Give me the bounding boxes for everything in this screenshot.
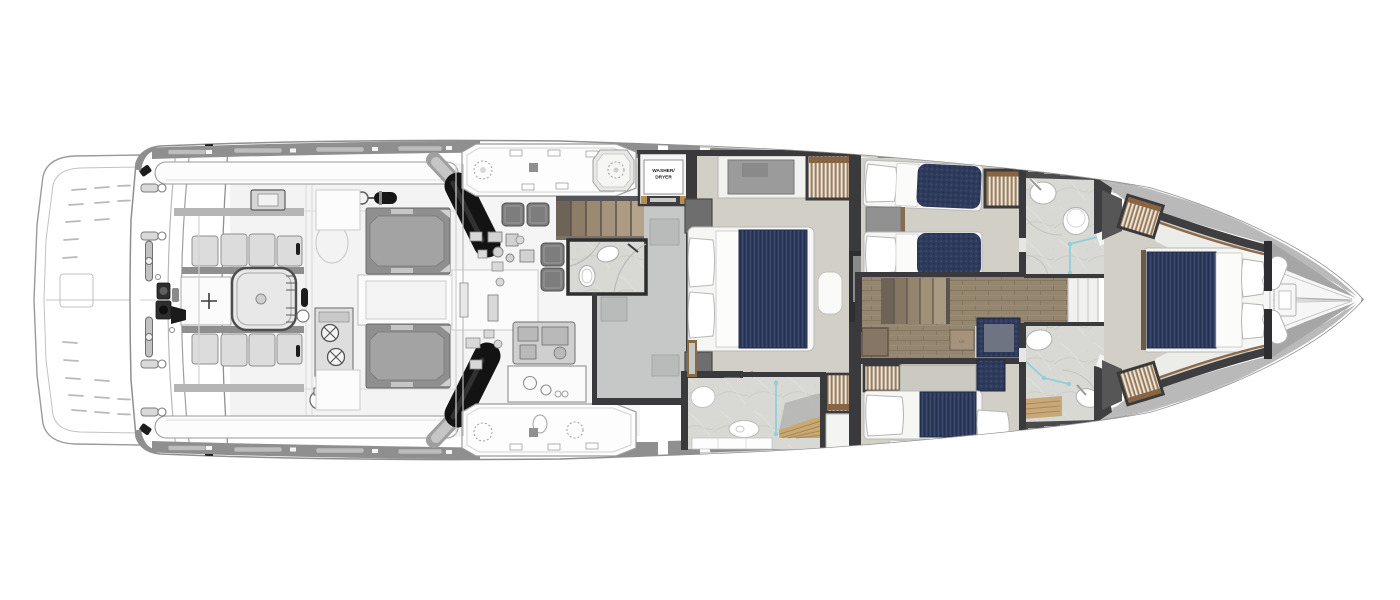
svg-text:DRYER: DRYER <box>655 175 672 181</box>
svg-text:WASHER/: WASHER/ <box>652 168 675 174</box>
svg-text:UP: UP <box>959 339 965 344</box>
